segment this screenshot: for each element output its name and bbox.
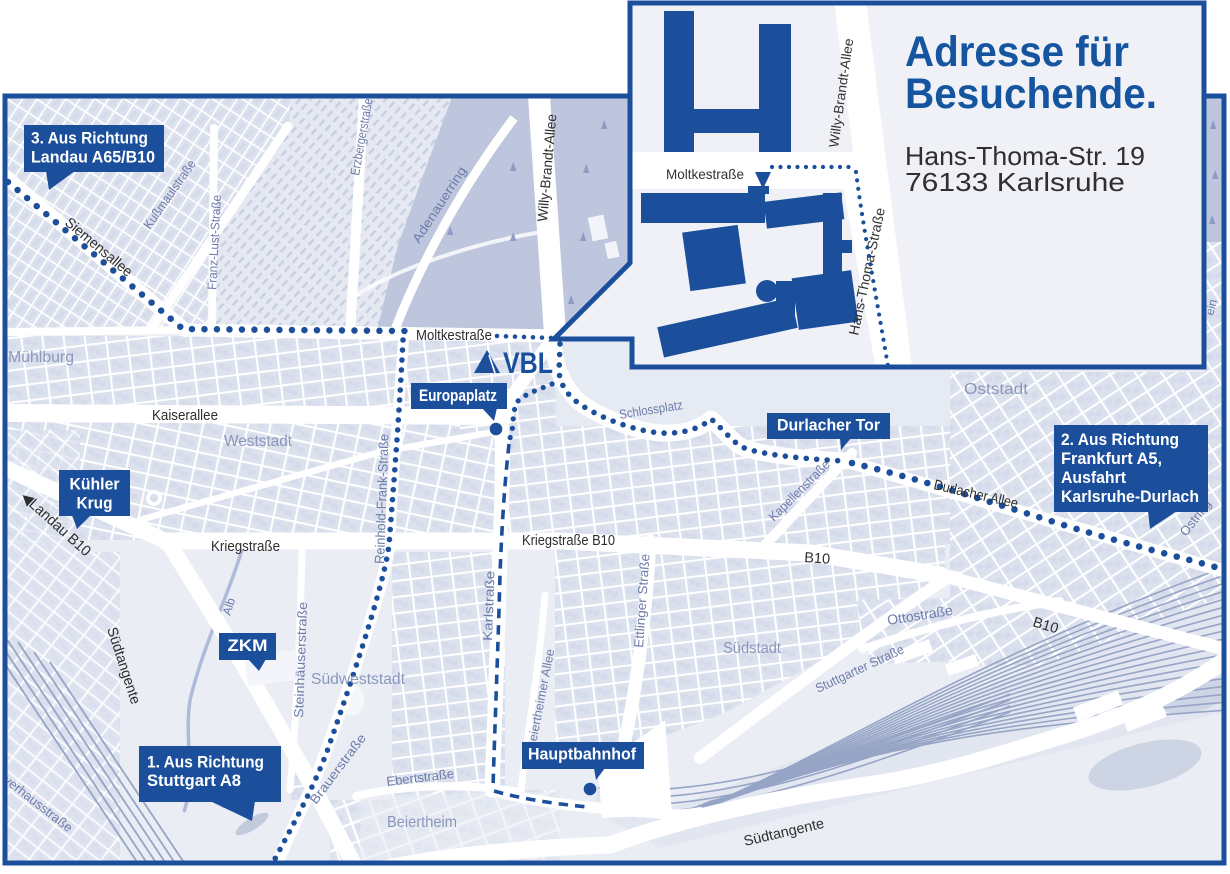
svg-text:Karlsruhe-Durlach: Karlsruhe-Durlach [1061,488,1199,506]
svg-text:ZKM: ZKM [228,637,268,655]
svg-text:B10: B10 [804,550,831,568]
svg-text:Kriegstraße B10: Kriegstraße B10 [522,533,615,549]
svg-text:Krug: Krug [77,495,113,513]
svg-text:1. Aus Richtung: 1. Aus Richtung [147,754,264,772]
svg-text:Ausfahrt: Ausfahrt [1061,469,1126,487]
svg-text:Südweststadt: Südweststadt [311,671,406,688]
svg-text:Kriegstraße: Kriegstraße [211,539,280,555]
svg-text:Landau A65/B10: Landau A65/B10 [31,149,155,167]
svg-text:Durlacher Tor: Durlacher Tor [777,417,881,435]
svg-text:Kühler: Kühler [70,476,121,494]
svg-text:2. Aus Richtung: 2. Aus Richtung [1061,431,1179,449]
svg-text:Frankfurt A5,: Frankfurt A5, [1061,450,1162,468]
svg-text:3. Aus Richtung: 3. Aus Richtung [31,130,148,148]
svg-text:VBL: VBL [503,347,553,380]
svg-text:Europaplatz: Europaplatz [419,387,497,405]
svg-text:Moltkestraße: Moltkestraße [416,328,492,344]
svg-text:Weststadt: Weststadt [224,433,293,450]
svg-text:Mühlburg: Mühlburg [8,349,74,366]
svg-text:Karlstraße: Karlstraße [480,571,497,641]
svg-text:Besuchende.: Besuchende. [905,70,1157,118]
svg-text:Hauptbahnhof: Hauptbahnhof [528,746,636,764]
svg-text:Südstadt: Südstadt [723,640,782,657]
svg-text:76133 Karlsruhe: 76133 Karlsruhe [905,167,1125,197]
svg-text:Oststadt: Oststadt [964,381,1029,398]
svg-text:Kaiserallee: Kaiserallee [152,408,218,424]
svg-text:Moltkestraße: Moltkestraße [666,166,744,182]
svg-text:Stuttgart A8: Stuttgart A8 [147,772,241,790]
svg-text:Adresse für: Adresse für [905,28,1129,76]
svg-text:Beiertheim: Beiertheim [387,814,457,831]
